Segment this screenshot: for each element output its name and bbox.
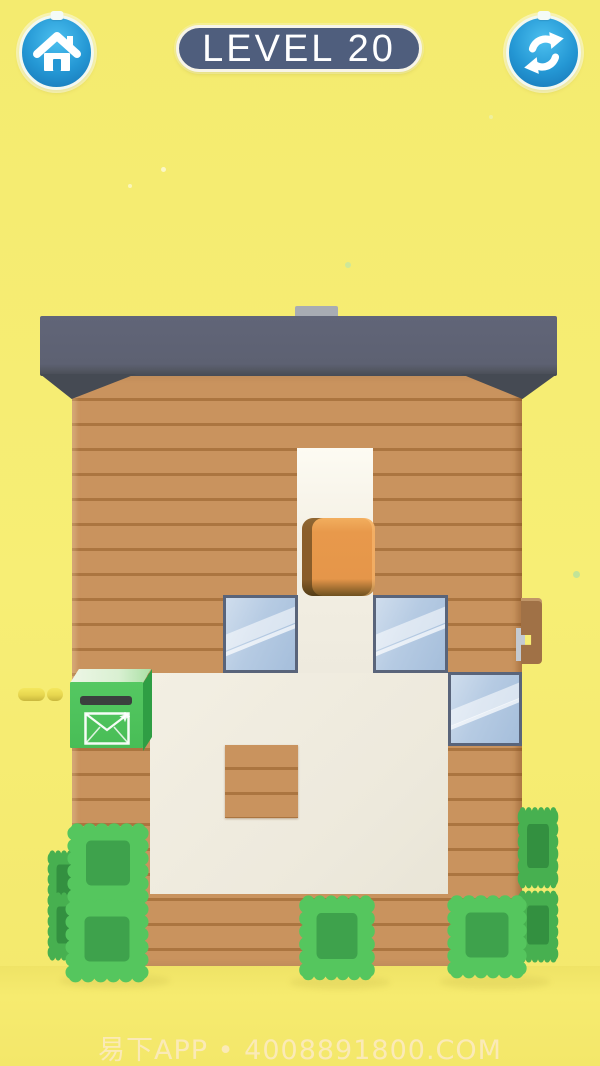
sparkle-particle xyxy=(345,262,351,268)
sparkle-particle xyxy=(128,184,132,188)
watermark-text: 易下APP • 4008891800.COM xyxy=(0,1028,600,1066)
level-badge: LEVEL 20 xyxy=(176,25,422,72)
mailbox-top-face xyxy=(70,669,151,683)
coin xyxy=(18,688,45,701)
home-button[interactable] xyxy=(19,15,94,90)
home-icon xyxy=(31,28,83,78)
wood-peg-block[interactable] xyxy=(521,598,542,664)
button-notch xyxy=(50,11,63,20)
roof xyxy=(40,316,557,376)
orange-cube-block[interactable] xyxy=(302,518,375,596)
bush-block[interactable] xyxy=(444,890,530,980)
glass-window-block[interactable] xyxy=(448,672,522,746)
wood-square-block[interactable] xyxy=(225,745,298,818)
mailbox-slot xyxy=(80,696,132,705)
button-notch xyxy=(537,11,550,20)
glass-window-block[interactable] xyxy=(223,595,298,673)
glass-window-block[interactable] xyxy=(373,595,448,673)
mailbox-side-face xyxy=(143,669,152,751)
interior-room xyxy=(150,673,448,894)
mailbox-front-face xyxy=(70,682,143,748)
mailbox-block[interactable] xyxy=(68,666,154,750)
refresh-icon xyxy=(519,28,569,78)
coin xyxy=(47,688,63,701)
sparkle-particle xyxy=(489,115,493,119)
restart-button[interactable] xyxy=(506,15,581,90)
game-screen: 易下APP • 4008891800.COM LEVEL 20 xyxy=(0,0,600,1066)
sparkle-particle xyxy=(161,167,166,172)
bush-block[interactable] xyxy=(62,894,152,984)
sparkle-particle xyxy=(573,571,580,578)
bush-block[interactable] xyxy=(296,890,378,982)
bush-block[interactable] xyxy=(516,802,560,890)
level-badge-label: LEVEL 20 xyxy=(202,30,396,68)
envelope-icon xyxy=(84,712,130,745)
